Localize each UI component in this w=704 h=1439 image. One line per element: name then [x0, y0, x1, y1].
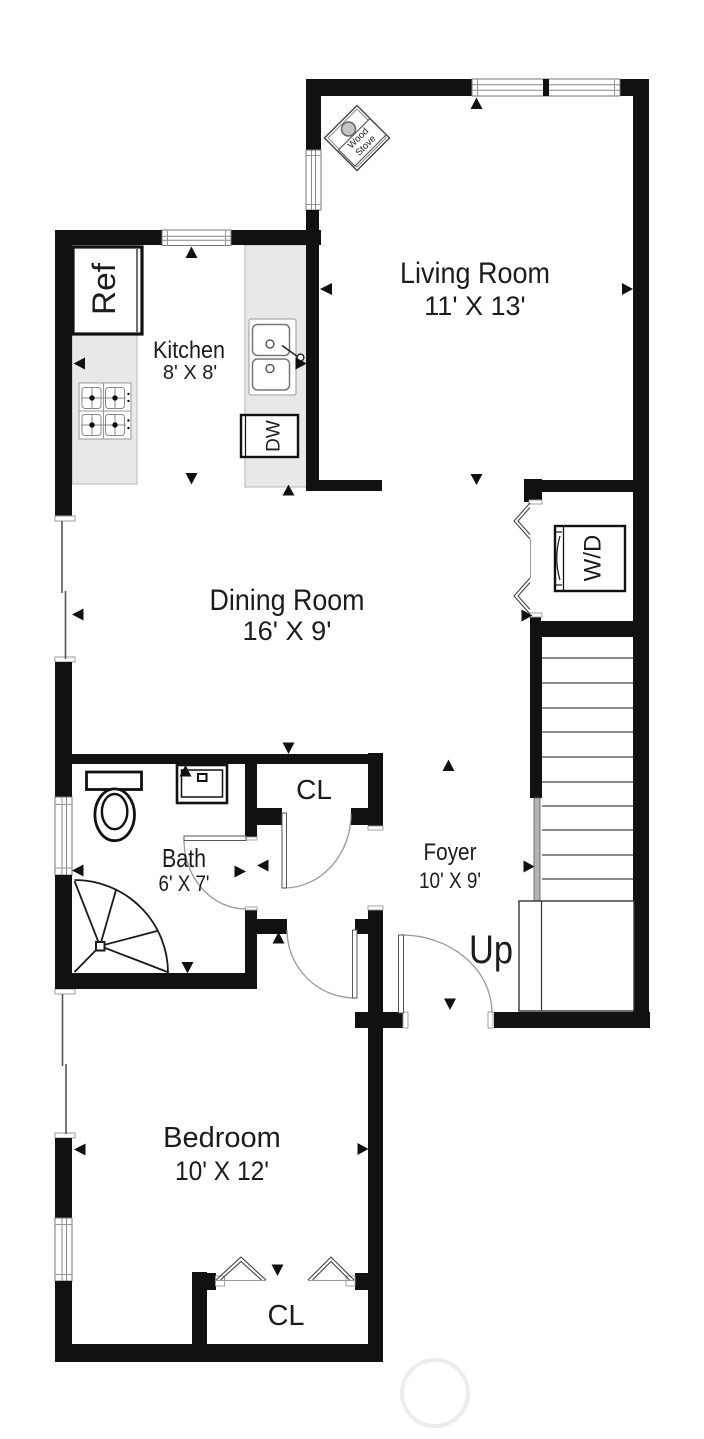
svg-text:6' X 7': 6' X 7'	[159, 871, 210, 896]
svg-text:Bath: Bath	[162, 843, 206, 873]
svg-text:Foyer: Foyer	[424, 839, 477, 866]
svg-text:CL: CL	[267, 1300, 304, 1332]
svg-text:Bedroom: Bedroom	[163, 1122, 281, 1154]
svg-text:Up: Up	[469, 928, 513, 972]
svg-text:Kitchen: Kitchen	[153, 337, 225, 364]
svg-text:10' X 9': 10' X 9'	[419, 868, 481, 893]
svg-text:10' X 12': 10' X 12'	[175, 1156, 269, 1186]
svg-text:Ref: Ref	[86, 263, 122, 315]
svg-text:16' X 9': 16' X 9'	[243, 616, 332, 646]
svg-text:11' X 13': 11' X 13'	[424, 291, 525, 321]
svg-text:8' X 8': 8' X 8'	[163, 362, 217, 384]
svg-text:CL: CL	[296, 774, 332, 805]
svg-text:Dining Room: Dining Room	[210, 584, 365, 617]
svg-text:DW: DW	[264, 420, 285, 452]
svg-text:Living Room: Living Room	[400, 257, 550, 290]
svg-text:W/D: W/D	[580, 535, 607, 582]
